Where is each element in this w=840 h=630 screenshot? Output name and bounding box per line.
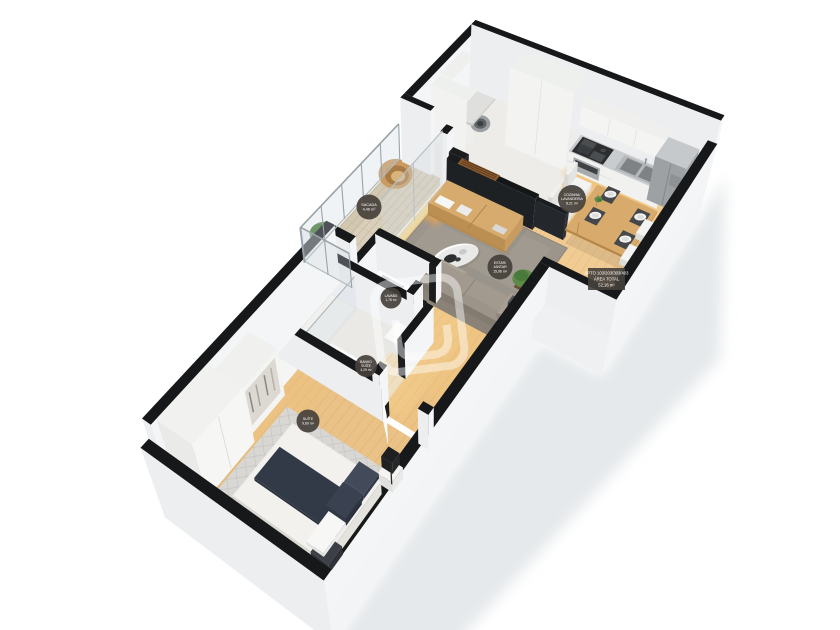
svg-text:APTO 103/203/303/403: APTO 103/203/303/403 xyxy=(585,271,630,276)
svg-text:4,46 m²: 4,46 m² xyxy=(363,208,377,212)
svg-text:15,96 m²: 15,96 m² xyxy=(493,269,508,273)
svg-text:52,16 m²: 52,16 m² xyxy=(598,283,615,288)
svg-text:8,21 m²: 8,21 m² xyxy=(566,201,579,205)
svg-text:ÁREA TOTAL: ÁREA TOTAL xyxy=(594,277,620,282)
svg-text:SACADA: SACADA xyxy=(361,203,377,207)
svg-text:9,69 m²: 9,69 m² xyxy=(302,421,315,425)
svg-text:1,76 m²: 1,76 m² xyxy=(385,298,397,302)
svg-text:4,29 m²: 4,29 m² xyxy=(360,368,372,372)
